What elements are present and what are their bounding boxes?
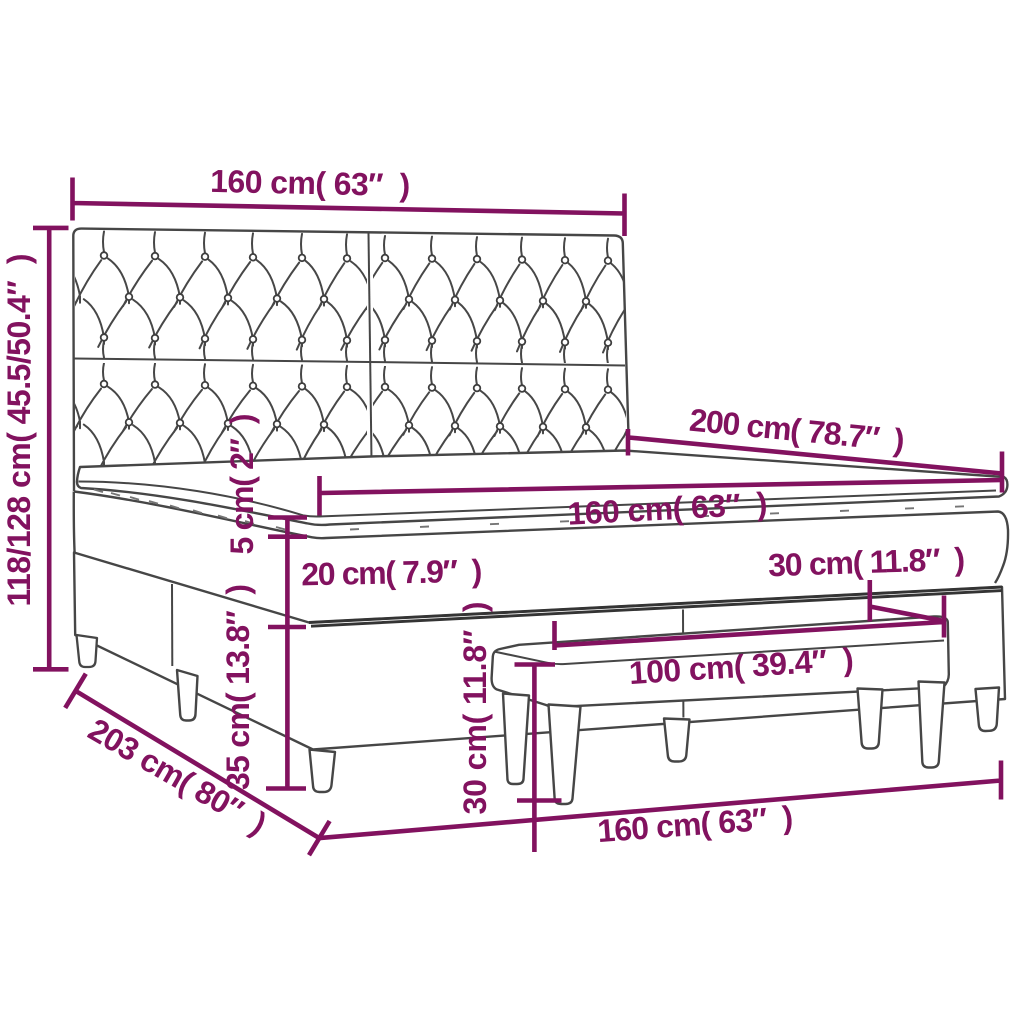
svg-text:35 cm( 13.8″ ): 35 cm( 13.8″ ): [220, 584, 256, 790]
svg-text:30 cm( 11.8″ ): 30 cm( 11.8″ ): [457, 602, 493, 815]
svg-text:20 cm( 7.9″ ): 20 cm( 7.9″ ): [301, 553, 483, 593]
svg-text:30 cm( 11.8″ ): 30 cm( 11.8″ ): [768, 541, 966, 584]
svg-text:5 cm( 2″ ): 5 cm( 2″ ): [224, 414, 260, 555]
svg-text:118/128 cm( 45.5/50.4″ ): 118/128 cm( 45.5/50.4″ ): [1, 254, 37, 607]
svg-text:160 cm( 63″ ): 160 cm( 63″ ): [210, 163, 411, 203]
